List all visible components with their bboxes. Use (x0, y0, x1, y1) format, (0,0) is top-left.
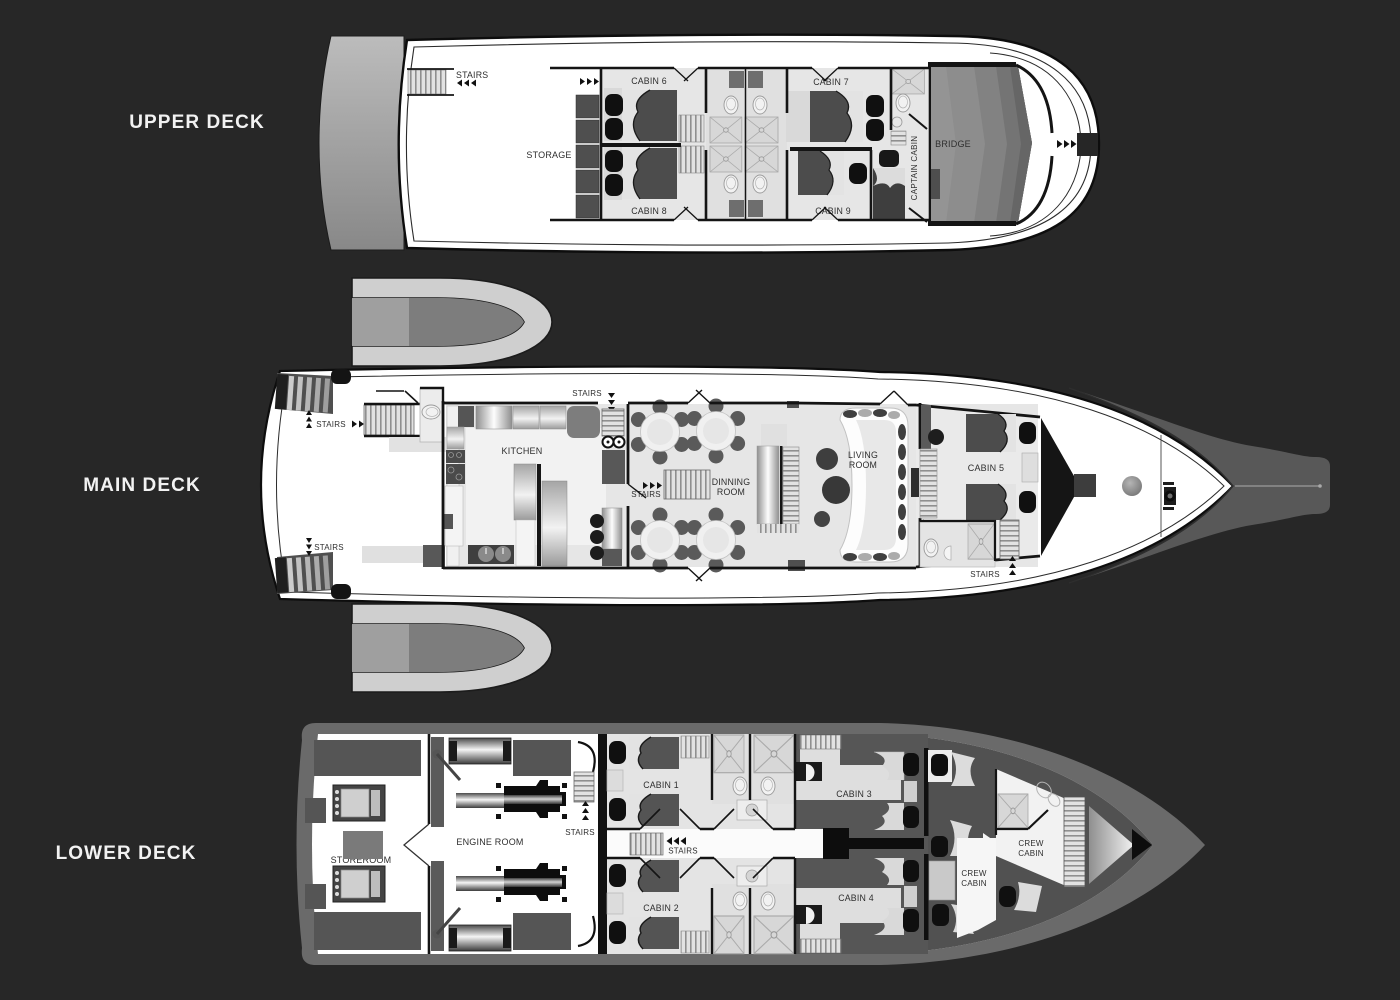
svg-text:BRIDGE: BRIDGE (935, 139, 971, 149)
svg-text:CABIN 5: CABIN 5 (968, 463, 1004, 473)
svg-text:CAPTAIN CABIN: CAPTAIN CABIN (910, 136, 919, 201)
svg-text:STAIRS: STAIRS (316, 420, 346, 429)
svg-text:MAIN DECK: MAIN DECK (83, 475, 201, 496)
svg-text:CABIN 4: CABIN 4 (838, 893, 874, 903)
svg-text:CABIN: CABIN (961, 879, 986, 888)
svg-text:CABIN 8: CABIN 8 (631, 206, 667, 216)
svg-text:CREW: CREW (1018, 839, 1043, 848)
svg-text:STAIRS: STAIRS (668, 847, 698, 856)
svg-text:CABIN 7: CABIN 7 (813, 77, 849, 87)
svg-text:CABIN 2: CABIN 2 (643, 903, 679, 913)
svg-text:ROOM: ROOM (849, 460, 877, 470)
svg-text:CABIN 6: CABIN 6 (631, 76, 667, 86)
svg-text:STORAGE: STORAGE (526, 150, 571, 160)
svg-text:STAIRS: STAIRS (565, 828, 595, 837)
svg-text:STAIRS: STAIRS (314, 543, 344, 552)
svg-text:ROOM: ROOM (717, 487, 745, 497)
svg-text:CABIN: CABIN (1018, 849, 1043, 858)
svg-text:STAIRS: STAIRS (456, 70, 488, 80)
svg-text:CREW: CREW (961, 869, 986, 878)
svg-text:CABIN 1: CABIN 1 (643, 780, 679, 790)
svg-text:LIVING: LIVING (848, 450, 878, 460)
svg-text:STAIRS: STAIRS (572, 389, 602, 398)
svg-text:KITCHEN: KITCHEN (502, 446, 543, 456)
svg-text:DINNING: DINNING (712, 477, 751, 487)
svg-text:STAIRS: STAIRS (970, 570, 1000, 579)
svg-text:CABIN 3: CABIN 3 (836, 789, 872, 799)
svg-text:UPPER DECK: UPPER DECK (129, 112, 265, 133)
svg-text:ENGINE ROOM: ENGINE ROOM (456, 837, 523, 847)
svg-text:LOWER DECK: LOWER DECK (56, 843, 197, 864)
